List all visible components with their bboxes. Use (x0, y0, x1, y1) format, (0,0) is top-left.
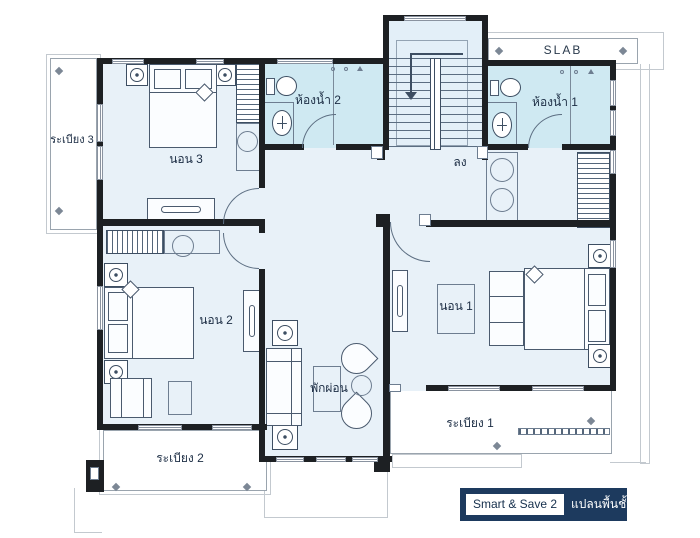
pillow (108, 324, 128, 353)
wall-bath1-top (488, 60, 616, 66)
lamp-icon (214, 64, 236, 86)
bedroom1-label: นอน 1 (430, 297, 482, 316)
window (97, 286, 103, 330)
stool (172, 235, 194, 257)
wall-bed3-bath2 (259, 58, 265, 150)
pillow (154, 69, 181, 89)
vent-dot (560, 70, 564, 74)
bedroom3-label: นอน 3 (158, 150, 214, 169)
toilet-icon (500, 78, 521, 97)
wardrobe-bedroom1 (577, 152, 610, 228)
window (277, 59, 333, 64)
wall-bath1-bottom-r (562, 144, 616, 150)
sofa-living (266, 348, 302, 426)
window (404, 16, 466, 21)
wall-bed2-hall (259, 269, 265, 462)
pillow (108, 292, 128, 321)
cabinet-slot (397, 285, 403, 317)
window (276, 457, 304, 462)
window (610, 110, 616, 136)
living-label: พักผ่อน (300, 379, 358, 398)
lamp-icon (588, 244, 612, 268)
window (97, 146, 103, 180)
stair-arrow-line-v (410, 53, 412, 93)
wall-bed3-hall (259, 150, 265, 188)
lamp-icon (588, 344, 612, 368)
roof-edge-right (640, 64, 650, 464)
wall-bed2-hall-stub (259, 219, 265, 233)
dresser-mirror (490, 158, 514, 182)
stair-rail (430, 58, 441, 150)
window (610, 80, 616, 106)
window (316, 457, 346, 462)
vent-dot (331, 67, 335, 71)
lamp-icon (272, 320, 298, 346)
plan-badge: Smart & Save 2 แปลนพื้นชั้น 2 (460, 488, 627, 521)
vent-dot (574, 70, 578, 74)
stairs-down-label: ลง (446, 153, 474, 172)
window (610, 150, 616, 174)
balcony1-label: ระเบียง 1 (420, 414, 520, 433)
brand-badge: Smart & Save 2 (466, 494, 564, 515)
roof-edge-bottom (610, 462, 646, 463)
wall-stair-left (383, 15, 389, 150)
window (448, 386, 500, 391)
wall-bedroom1-top-cap (376, 214, 390, 227)
stair-arrow-line-h (411, 53, 463, 55)
eave-corner (74, 488, 102, 533)
vent-dot (344, 67, 348, 71)
sink-icon (492, 112, 512, 138)
dresser-handle (161, 206, 201, 213)
wardrobe-bedroom2 (106, 230, 164, 254)
wall-bath2-bottom-l (262, 144, 304, 150)
sofa-bedroom1 (489, 271, 524, 346)
window (610, 240, 616, 268)
stair-arrow-head (405, 92, 417, 100)
floor-plan: ระเบียง 3 นอน 3 ห้องน้ำ 2 SLAB ห้องน้ำ 1… (0, 0, 700, 538)
stool (237, 131, 258, 152)
wall-stair-right (482, 15, 488, 148)
window (532, 386, 584, 391)
vent-triangle (357, 66, 363, 71)
balcony1-step-outline (392, 454, 522, 468)
balcony3-label: ระเบียง 3 (42, 130, 102, 148)
balcony1-railing (518, 428, 610, 435)
bed-seam (584, 269, 585, 349)
wall-bedroom1-top (426, 220, 616, 227)
window (138, 425, 182, 430)
column-notch (90, 467, 99, 480)
slab-label: SLAB (518, 43, 608, 57)
window (352, 457, 378, 462)
bath2-label: ห้องน้ำ 2 (288, 91, 348, 110)
cabinet-slot (249, 305, 255, 337)
wall-bedroom1-left (383, 227, 390, 462)
wall-bath1-bottom-l (488, 144, 528, 150)
sink-icon (272, 110, 292, 136)
window (212, 425, 252, 430)
door-jamb (371, 146, 383, 159)
toilet-tank (266, 78, 275, 95)
toilet-tank (490, 80, 499, 96)
pillow (588, 274, 606, 306)
door-jamb (389, 384, 401, 392)
dresser-mirror (490, 188, 514, 212)
window (112, 59, 144, 64)
pillow (588, 310, 606, 342)
lamp-icon (104, 263, 128, 287)
lamp-icon (272, 424, 298, 450)
bath1-label: ห้องน้ำ 1 (522, 93, 588, 112)
porch-outline (264, 460, 388, 518)
bed-seam (132, 288, 133, 358)
lounge-chair (110, 378, 152, 418)
ottoman (168, 381, 192, 415)
vent-triangle (588, 69, 594, 74)
bedroom2-label: นอน 2 (190, 311, 242, 330)
lamp-icon (126, 64, 148, 86)
plan-name-label: แปลนพื้นชั้น 2 (571, 495, 644, 514)
balcony2-label: ระเบียง 2 (130, 449, 230, 468)
window (196, 59, 224, 64)
door-jamb (477, 146, 488, 159)
